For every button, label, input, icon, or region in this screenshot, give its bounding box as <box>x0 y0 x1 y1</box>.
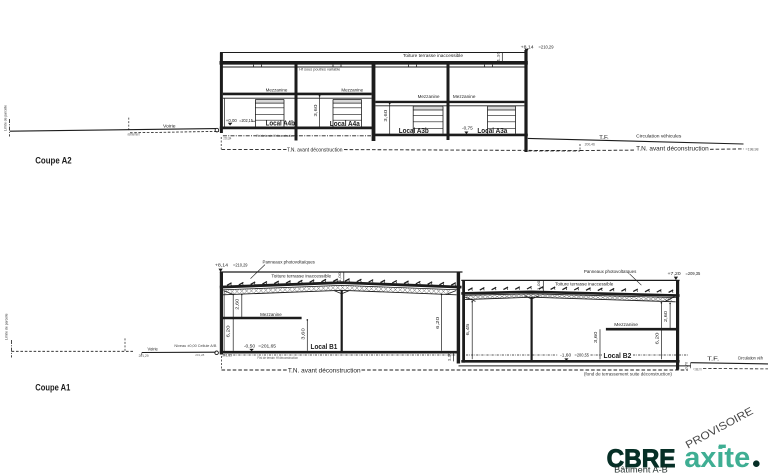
svg-text:Local A3a: Local A3a <box>477 128 507 135</box>
svg-text:Mezzanine: Mezzanine <box>418 94 441 99</box>
svg-text:1,10: 1,10 <box>448 352 452 361</box>
svg-text:2,60: 2,60 <box>663 310 668 322</box>
svg-text:Limite de parcelle: Limite de parcelle <box>5 313 9 340</box>
svg-text:+0,00: +0,00 <box>226 118 238 123</box>
svg-text:=210,29: =210,29 <box>539 44 554 50</box>
svg-text:+7,20: +7,20 <box>668 271 682 277</box>
svg-text:201,15: 201,15 <box>222 353 232 357</box>
svg-text:Fini de terrain Hf déconstruct: Fini de terrain Hf déconstruction <box>257 356 298 360</box>
svg-text:Coupe A1: Coupe A1 <box>35 382 71 393</box>
svg-text:2,60: 2,60 <box>235 298 240 310</box>
svg-text:T.N. avant déconstruction: T.N. avant déconstruction <box>636 146 709 152</box>
svg-text:-1,60: -1,60 <box>560 353 571 358</box>
svg-text:T.F.: T.F. <box>707 356 719 362</box>
svg-text:3,60: 3,60 <box>300 328 305 340</box>
svg-text:201,28: 201,28 <box>195 353 204 357</box>
svg-text:Local A4a: Local A4a <box>330 121 360 128</box>
svg-text:Panneaux photovoltaïques: Panneaux photovoltaïques <box>263 259 316 264</box>
svg-text:=209,35: =209,35 <box>686 271 701 277</box>
svg-text:Circulation véhicules: Circulation véhicules <box>636 133 682 138</box>
svg-text:201,84: 201,84 <box>223 137 231 141</box>
svg-text:(fond de terrassement suite dé: (fond de terrassement suite déconstructi… <box>584 372 673 377</box>
svg-text:6,20: 6,20 <box>655 332 660 345</box>
svg-text:Local B2: Local B2 <box>604 353 632 360</box>
svg-text:=202,15: =202,15 <box>239 118 253 123</box>
svg-text:Local B1: Local B1 <box>311 344 338 351</box>
svg-text:=201,65: =201,65 <box>258 343 276 348</box>
svg-text:Mezzanine: Mezzanine <box>341 88 363 93</box>
svg-text:1,10: 1,10 <box>496 51 501 62</box>
svg-text:-0,75: -0,75 <box>462 126 473 131</box>
svg-text:=198,70: =198,70 <box>693 367 702 371</box>
svg-text:T.N. avant déconstruction: T.N. avant déconstruction <box>288 368 361 374</box>
svg-text:1,00: 1,00 <box>337 272 342 282</box>
svg-text:0,70: 0,70 <box>685 362 689 370</box>
svg-text:6,20: 6,20 <box>226 325 231 338</box>
svg-text:3,60: 3,60 <box>383 109 388 122</box>
svg-text:Fini de terrain Hf déconstruct: Fini de terrain Hf déconstruction <box>256 134 294 138</box>
svg-text:6,45: 6,45 <box>465 323 470 336</box>
svg-text:Mezzanine: Mezzanine <box>614 322 638 327</box>
svg-text:1,00: 1,00 <box>536 280 541 290</box>
svg-text:-0,50: -0,50 <box>244 343 256 348</box>
svg-text:Toiture terrasse inaccessible: Toiture terrasse inaccessible <box>271 274 331 280</box>
svg-text:=200,55: =200,55 <box>575 353 590 358</box>
svg-text:Toiture terrasse inaccessible: Toiture terrasse inaccessible <box>555 281 614 287</box>
svg-text:Local A4b: Local A4b <box>266 121 295 128</box>
svg-text:Toiture terrasse inaccessible: Toiture terrasse inaccessible <box>403 53 463 59</box>
svg-text:T.F.: T.F. <box>599 135 609 141</box>
svg-text:Voirie: Voirie <box>163 123 176 128</box>
svg-text:+8,14: +8,14 <box>215 263 229 269</box>
svg-text:Panneaux photovoltaïques: Panneaux photovoltaïques <box>584 269 637 274</box>
svg-text:Limite de parcelle: Limite de parcelle <box>4 105 8 131</box>
svg-text:6,20: 6,20 <box>435 316 440 329</box>
svg-text:Voirie: Voirie <box>148 346 159 351</box>
svg-text:dévoiement: dévoiement <box>128 132 140 136</box>
svg-text:3,60: 3,60 <box>313 104 318 117</box>
svg-text:Niveau ±0,00 Cellule A/B: Niveau ±0,00 Cellule A/B <box>174 344 217 348</box>
svg-text:Mezzanine: Mezzanine <box>266 88 288 93</box>
svg-text:Bâtiment A-B: Bâtiment A-B <box>614 466 668 475</box>
svg-text:T.N. avant déconstruction: T.N. avant déconstruction <box>287 147 343 153</box>
svg-text:200,46: 200,46 <box>585 143 595 147</box>
svg-text:3,60: 3,60 <box>593 331 598 343</box>
svg-text:201,29: 201,29 <box>139 354 149 358</box>
svg-text:Coupe A2: Coupe A2 <box>35 155 71 166</box>
svg-text:=210,29: =210,29 <box>233 263 248 269</box>
svg-text:Local A3b: Local A3b <box>399 128 429 135</box>
svg-text:Circulation véh: Circulation véh <box>738 355 764 360</box>
svg-text:Mezzanine: Mezzanine <box>453 94 476 99</box>
svg-text:=198,98: =198,98 <box>746 147 759 151</box>
svg-text:Hf sous poutres variable: Hf sous poutres variable <box>299 68 340 72</box>
svg-text:axite: axite <box>684 442 750 474</box>
svg-text:Mezzanine: Mezzanine <box>260 312 282 317</box>
